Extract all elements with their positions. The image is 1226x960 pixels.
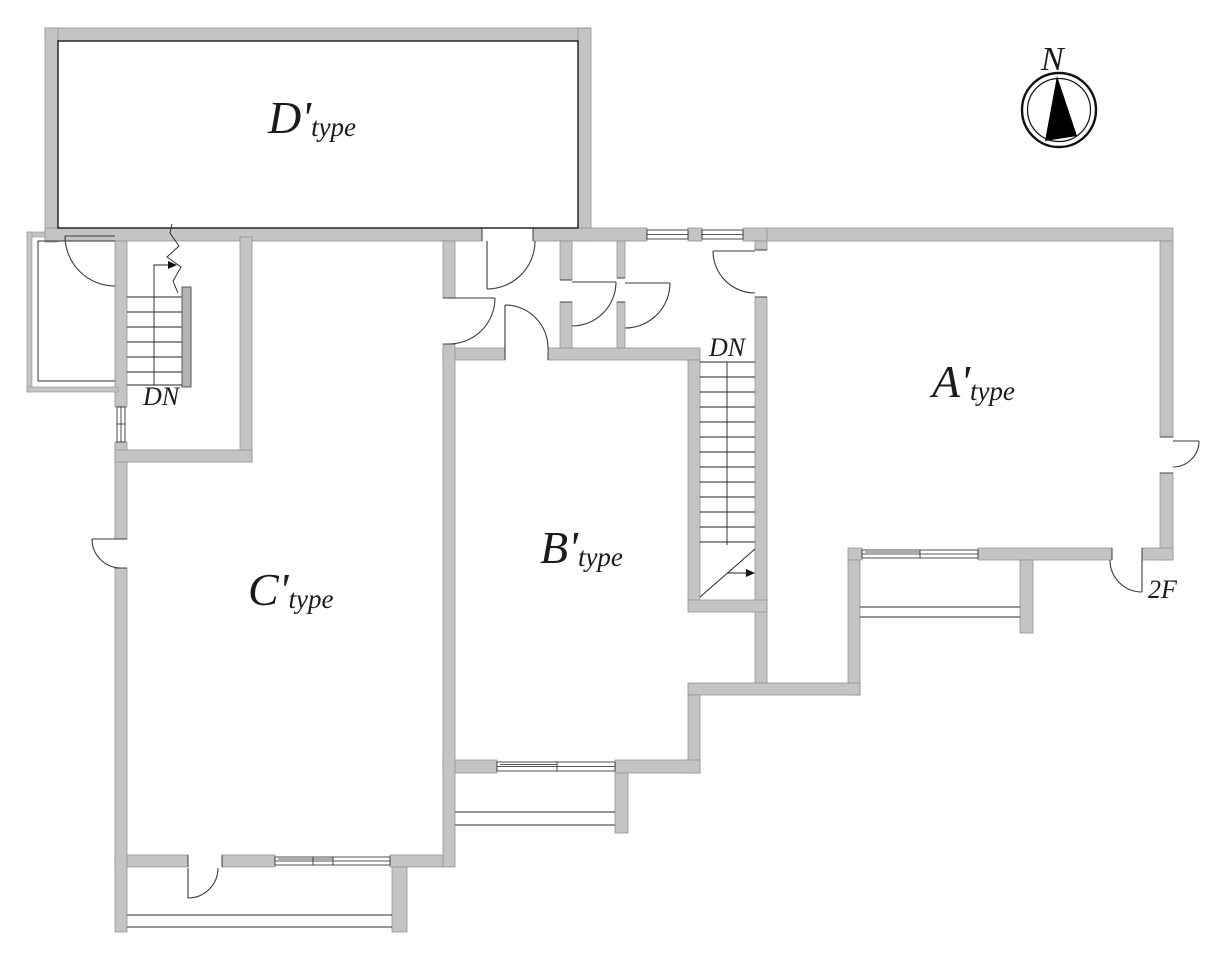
wall bbox=[548, 348, 700, 360]
wall bbox=[45, 28, 58, 242]
walls bbox=[27, 28, 1173, 932]
stair-handrail bbox=[182, 287, 191, 387]
wall bbox=[222, 855, 275, 867]
porch-wall bbox=[27, 232, 32, 392]
wall bbox=[390, 855, 443, 867]
door bbox=[505, 305, 548, 348]
wall bbox=[533, 228, 647, 241]
stair-right-dn-label: DN bbox=[708, 333, 747, 362]
wall bbox=[392, 867, 407, 932]
window bbox=[862, 550, 978, 558]
balcony-rail bbox=[455, 812, 615, 825]
wall bbox=[688, 683, 860, 695]
floor-plan: N D'type C'type B'type A'type DN DN 2F bbox=[0, 0, 1226, 960]
window bbox=[497, 762, 615, 771]
room-label-a-type: A'type bbox=[929, 356, 1015, 407]
wall bbox=[115, 241, 127, 407]
wall bbox=[45, 228, 482, 241]
stair-direction-arrow bbox=[746, 569, 755, 577]
wall bbox=[1160, 241, 1173, 437]
door bbox=[625, 283, 670, 328]
porch-outline bbox=[38, 241, 115, 381]
door bbox=[713, 251, 755, 293]
door bbox=[449, 298, 495, 344]
window bbox=[647, 230, 688, 239]
wall bbox=[848, 548, 862, 560]
wall bbox=[443, 344, 455, 867]
door bbox=[487, 241, 535, 289]
room-label-b-type: B'type bbox=[540, 522, 623, 573]
wall bbox=[443, 241, 455, 298]
stair-right bbox=[700, 362, 755, 597]
compass-label: N bbox=[1040, 41, 1066, 78]
door bbox=[572, 282, 616, 326]
wall bbox=[755, 297, 767, 683]
wall bbox=[1020, 560, 1033, 633]
wall bbox=[617, 302, 625, 348]
door bbox=[1173, 441, 1199, 467]
wall bbox=[115, 450, 252, 462]
compass-north-icon: N bbox=[1022, 41, 1096, 147]
wall bbox=[978, 548, 1112, 560]
stair-left bbox=[127, 224, 191, 387]
compass-needle bbox=[1045, 76, 1077, 141]
window bbox=[702, 230, 743, 239]
wall bbox=[688, 228, 702, 241]
balcony-rail bbox=[127, 915, 392, 927]
wall bbox=[578, 28, 591, 241]
room-label-c-type: C'type bbox=[248, 564, 334, 615]
door bbox=[1110, 560, 1142, 592]
wall bbox=[1142, 548, 1173, 560]
wall bbox=[755, 241, 767, 250]
floor-note-2f: 2F bbox=[1148, 575, 1178, 604]
balcony-rail bbox=[860, 607, 1020, 617]
floor-plan-drawing: N D'type C'type B'type A'type DN DN 2F bbox=[0, 0, 1226, 960]
room-label-d-type: D'type bbox=[267, 92, 356, 143]
wall bbox=[688, 360, 700, 600]
wall bbox=[743, 228, 767, 241]
wall bbox=[615, 760, 700, 773]
door bbox=[92, 539, 121, 568]
wall bbox=[240, 237, 252, 462]
wall bbox=[560, 302, 572, 348]
stair-direction-arrow bbox=[168, 261, 177, 269]
wall bbox=[45, 28, 590, 41]
window bbox=[275, 857, 390, 865]
porch-wall bbox=[27, 387, 118, 392]
wall bbox=[688, 600, 767, 612]
wall bbox=[617, 241, 625, 278]
door bbox=[65, 236, 115, 286]
wall bbox=[615, 773, 628, 833]
wall bbox=[1160, 473, 1173, 560]
wall bbox=[767, 228, 1173, 241]
door bbox=[188, 868, 218, 898]
wall bbox=[848, 560, 860, 695]
wall bbox=[115, 568, 127, 932]
stair-left-dn-label: DN bbox=[142, 382, 181, 411]
window bbox=[117, 407, 125, 442]
wall bbox=[560, 241, 572, 280]
